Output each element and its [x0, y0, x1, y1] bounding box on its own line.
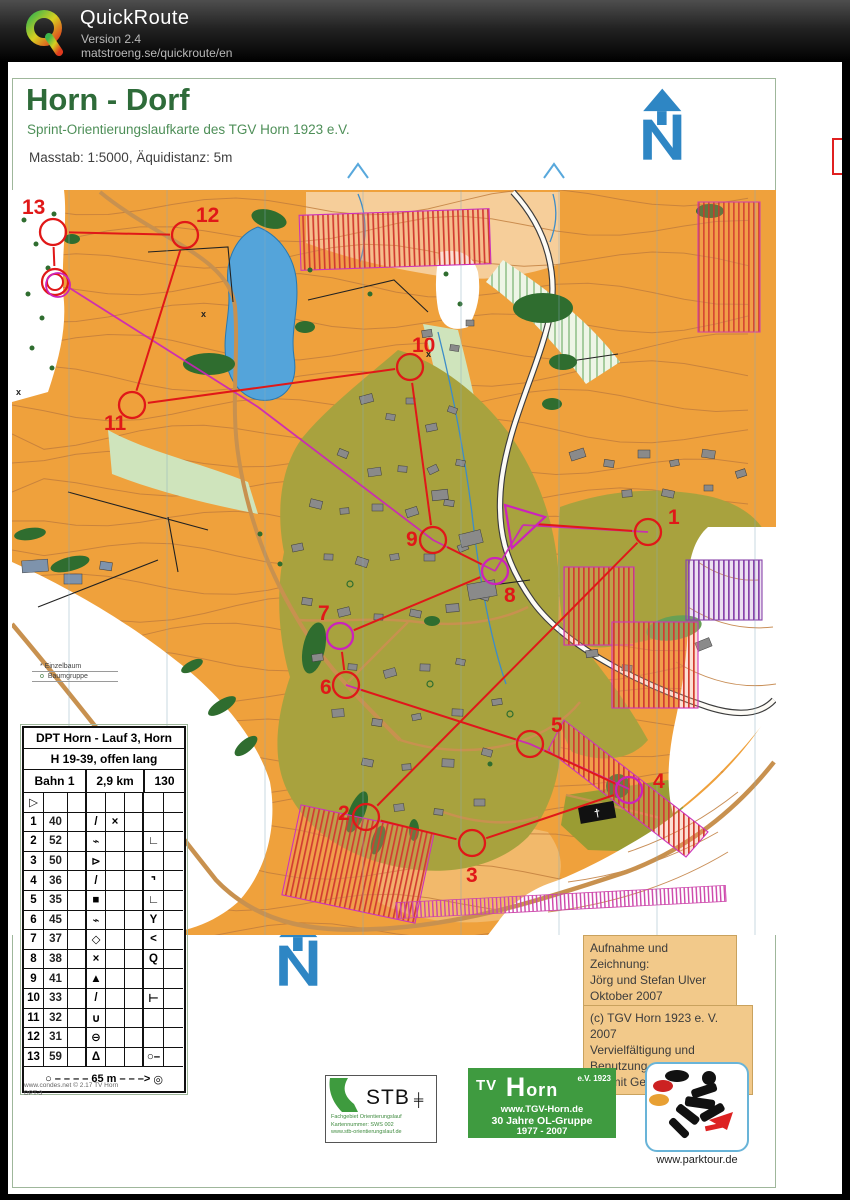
control-code-cell: 38 — [44, 950, 68, 970]
building — [22, 559, 49, 573]
symbol-cell — [164, 1009, 183, 1029]
control-description-sheet: DPT Horn - Lauf 3, Horn H 19-39, offen l… — [22, 726, 186, 1093]
symbol-cell — [68, 911, 87, 931]
symbol-cell — [164, 950, 183, 970]
symbol-cell — [68, 1028, 87, 1048]
event-title: DPT Horn - Lauf 3, Horn — [24, 728, 184, 749]
control-number-cell: 3 — [24, 852, 44, 872]
desc-cell — [144, 793, 164, 813]
symbol-cell: ■ — [87, 891, 106, 911]
symbol-cell — [144, 1028, 164, 1048]
building — [466, 320, 474, 326]
tgv-url: www.TGV-Horn.de — [468, 1104, 616, 1115]
symbol-cell — [125, 1028, 144, 1048]
symbol-cell — [106, 891, 125, 911]
symbol-cell: / — [87, 989, 106, 1009]
control-description-grid: ▷140/×252⌁∟350⊳436/⌝535■∟645⌁Y737◇<838×Q… — [24, 793, 184, 1067]
credits-box: Aufnahme und Zeichnung:Jörg und Stefan U… — [583, 935, 737, 1009]
symbol-cell: ⊢ — [144, 989, 164, 1009]
control-code-cell: 32 — [44, 1009, 68, 1029]
symbol-cell: ◇ — [87, 930, 106, 950]
symbol-cell — [106, 1028, 125, 1048]
tree-legend-item: o Baumgruppe — [32, 672, 118, 682]
desc-cell — [44, 793, 68, 813]
symbol-cell — [125, 1048, 144, 1068]
symbol-cell: ⌁ — [87, 832, 106, 852]
symbol-cell — [68, 969, 87, 989]
parktour-logo — [645, 1062, 749, 1152]
building — [586, 649, 599, 658]
control-number: 9 — [406, 528, 418, 551]
tree-legend: * Einzelbaumo Baumgruppe — [32, 662, 118, 682]
symbol-cell — [125, 832, 144, 852]
building — [492, 698, 503, 705]
symbol-cell — [106, 832, 125, 852]
credits-line: Jörg und Stefan Ulver — [590, 972, 730, 988]
symbol-cell — [106, 930, 125, 950]
control-code-cell: 37 — [44, 930, 68, 950]
symbol-cell — [68, 930, 87, 950]
building — [340, 508, 349, 515]
control-code-cell: 45 — [44, 911, 68, 931]
desc-cell — [125, 793, 144, 813]
building — [390, 553, 400, 560]
tgv-mark: TV — [476, 1077, 497, 1094]
control-number: 13 — [22, 196, 45, 219]
finish-circle-glyph: ◎ — [153, 1073, 163, 1086]
symbol-cell — [106, 989, 125, 1009]
quickroute-logo-icon — [22, 8, 68, 56]
control-number: 6 — [320, 676, 332, 699]
symbol-cell — [125, 911, 144, 931]
control-code-cell: 41 — [44, 969, 68, 989]
building — [420, 664, 430, 671]
copyright-line: (c) TGV Horn 1923 e. V. 2007 — [590, 1010, 746, 1042]
control-number: 10 — [412, 334, 435, 357]
control-number-cell: 4 — [24, 871, 44, 891]
control-code-cell: 40 — [44, 813, 68, 833]
symbol-cell: ⌁ — [87, 911, 106, 931]
building — [324, 554, 333, 560]
building — [394, 803, 405, 811]
building — [386, 413, 396, 420]
control-number: 4 — [653, 770, 665, 793]
symbol-cell: ▲ — [87, 969, 106, 989]
symbol-cell — [125, 891, 144, 911]
symbol-cell — [106, 1048, 125, 1068]
control-code-cell: 59 — [44, 1048, 68, 1068]
symbol-cell — [68, 950, 87, 970]
control-code-cell: 35 — [44, 891, 68, 911]
svg-text:x: x — [16, 387, 21, 397]
control-number: 12 — [196, 204, 219, 227]
control-number-cell: 1 — [24, 813, 44, 833]
building — [402, 764, 411, 771]
symbol-cell — [164, 832, 183, 852]
building — [368, 467, 382, 477]
symbol-cell: / — [87, 813, 106, 833]
control-number-cell: 8 — [24, 950, 44, 970]
stb-name: STB — [366, 1086, 410, 1110]
building — [332, 709, 345, 718]
symbol-cell: ⊖ — [87, 1028, 106, 1048]
symbol-cell — [164, 852, 183, 872]
desc-cell — [164, 793, 183, 813]
control-number-cell: 9 — [24, 969, 44, 989]
control-code-cell: 31 — [44, 1028, 68, 1048]
symbol-cell — [68, 813, 87, 833]
control-number-cell: 11 — [24, 1009, 44, 1029]
control-number-cell: 7 — [24, 930, 44, 950]
tgv-horn-logo: TV Horn e.V. 1923 www.TGV-Horn.de 30 Jah… — [468, 1068, 616, 1138]
symbol-cell — [164, 1028, 183, 1048]
credits-line: Oktober 2007 — [590, 988, 730, 1004]
symbol-cell: × — [106, 813, 125, 833]
building — [64, 574, 82, 584]
symbol-cell — [106, 969, 125, 989]
building — [474, 799, 485, 806]
runner-icon — [647, 1064, 743, 1146]
building — [450, 344, 460, 351]
symbol-cell — [106, 1009, 125, 1029]
building — [348, 664, 357, 671]
symbol-cell: ∟ — [144, 832, 164, 852]
building — [446, 604, 460, 613]
control-number-cell: 5 — [24, 891, 44, 911]
symbol-cell — [125, 969, 144, 989]
symbol-cell — [125, 950, 144, 970]
symbol-cell — [125, 989, 144, 1009]
symbol-cell — [125, 852, 144, 872]
symbol-cell: Y — [144, 911, 164, 931]
building — [312, 653, 324, 661]
credits-line: Aufnahme und Zeichnung: — [590, 940, 730, 972]
stb-fineprint-line: Fachgebiet Orientierungslauf — [331, 1114, 402, 1122]
symbol-cell — [68, 871, 87, 891]
app-version: Version 2.4 — [81, 32, 141, 46]
symbol-cell — [164, 1048, 183, 1068]
app-url: matstroeng.se/quickroute/en — [81, 46, 232, 60]
building — [444, 499, 455, 506]
building — [302, 597, 313, 605]
control-number-cell: 10 — [24, 989, 44, 1009]
symbol-cell — [144, 852, 164, 872]
control-number: 11 — [104, 412, 127, 435]
class-title: H 19-39, offen lang — [24, 749, 184, 770]
control-code-cell: 33 — [44, 989, 68, 1009]
start-symbol-cell: ▷ — [24, 793, 44, 813]
desc-cell — [106, 793, 125, 813]
symbol-cell — [125, 871, 144, 891]
symbol-cell — [106, 911, 125, 931]
control-code-cell: 50 — [44, 852, 68, 872]
control-number-cell: 13 — [24, 1048, 44, 1068]
course-climb: 130 — [145, 770, 184, 792]
symbol-cell — [68, 989, 87, 1009]
symbol-cell: ∪ — [87, 1009, 106, 1029]
symbol-cell: Q — [144, 950, 164, 970]
control-number: 7 — [318, 602, 330, 625]
control-number-cell: 12 — [24, 1028, 44, 1048]
symbol-cell — [125, 1009, 144, 1029]
building — [638, 450, 650, 458]
symbol-cell: × — [87, 950, 106, 970]
building — [702, 449, 716, 459]
symbol-cell — [106, 852, 125, 872]
symbol-cell — [164, 891, 183, 911]
symbol-cell — [68, 891, 87, 911]
symbol-cell — [68, 832, 87, 852]
symbol-cell: ⌝ — [144, 871, 164, 891]
symbol-cell — [144, 1009, 164, 1029]
course-leg — [54, 247, 55, 266]
symbol-cell — [164, 813, 183, 833]
symbol-cell — [164, 969, 183, 989]
window-titlebar[interactable]: QuickRoute Version 2.4 matstroeng.se/qui… — [0, 0, 850, 62]
building — [372, 718, 383, 726]
tree-legend-item: * Einzelbaum — [32, 662, 118, 672]
symbol-cell — [68, 1048, 87, 1068]
building — [452, 709, 463, 716]
desc-cell — [87, 793, 106, 813]
symbol-cell: / — [87, 871, 106, 891]
parktour-caption: www.parktour.de — [642, 1154, 752, 1166]
control-number: 3 — [466, 864, 478, 887]
stb-logo: STB ╪ Fachgebiet OrientierungslaufKarten… — [325, 1075, 437, 1143]
desc-cell — [68, 793, 87, 813]
symbol-cell — [68, 1009, 87, 1029]
symbol-cell — [106, 871, 125, 891]
tgv-badge: e.V. 1923 — [577, 1074, 611, 1083]
map-document-page: Horn - Dorf Sprint-Orientierungslaufkart… — [8, 62, 842, 1194]
symbol-cell — [164, 989, 183, 1009]
stb-fineprint-line: Kartennummer: SWS 002 — [331, 1122, 402, 1130]
symbol-cell — [164, 911, 183, 931]
control-number: 5 — [551, 714, 563, 737]
stream-arrow-marks — [348, 164, 564, 178]
symbol-cell — [125, 930, 144, 950]
symbol-cell — [164, 871, 183, 891]
condes-fineprint: www.condes.net © 2.17 TV Horn DPT-3 — [24, 1082, 118, 1098]
course-length: 2,9 km — [87, 770, 145, 792]
building — [398, 466, 407, 473]
stb-fineprint-line: www.stb-orientierungslauf.de — [331, 1129, 402, 1137]
control-number-cell: 6 — [24, 911, 44, 931]
building — [434, 809, 444, 816]
symbol-cell — [106, 950, 125, 970]
symbol-cell — [144, 813, 164, 833]
control-number: 2 — [338, 802, 350, 825]
symbol-cell: Δ — [87, 1048, 106, 1068]
building — [704, 485, 713, 491]
symbol-cell — [144, 969, 164, 989]
symbol-cell: ∟ — [144, 891, 164, 911]
control-number: 8 — [504, 584, 516, 607]
symbol-cell — [164, 930, 183, 950]
control-number-cell: 2 — [24, 832, 44, 852]
building — [372, 504, 383, 511]
building — [442, 759, 454, 767]
building — [432, 489, 449, 501]
svg-text:x: x — [201, 309, 206, 319]
symbol-cell: < — [144, 930, 164, 950]
stb-grid-icon: ╪ — [414, 1092, 423, 1107]
building — [622, 490, 632, 498]
app-title: QuickRoute — [80, 7, 190, 30]
symbol-cell: ⊳ — [87, 852, 106, 872]
control-code-cell: 52 — [44, 832, 68, 852]
course-name: Bahn 1 — [24, 770, 87, 792]
symbol-cell — [68, 852, 87, 872]
symbol-cell — [125, 813, 144, 833]
control-number: 1 — [668, 506, 680, 529]
symbol-cell: ○– — [144, 1048, 164, 1068]
building — [100, 561, 113, 571]
building — [604, 459, 615, 467]
building — [424, 554, 435, 561]
control-code-cell: 36 — [44, 871, 68, 891]
